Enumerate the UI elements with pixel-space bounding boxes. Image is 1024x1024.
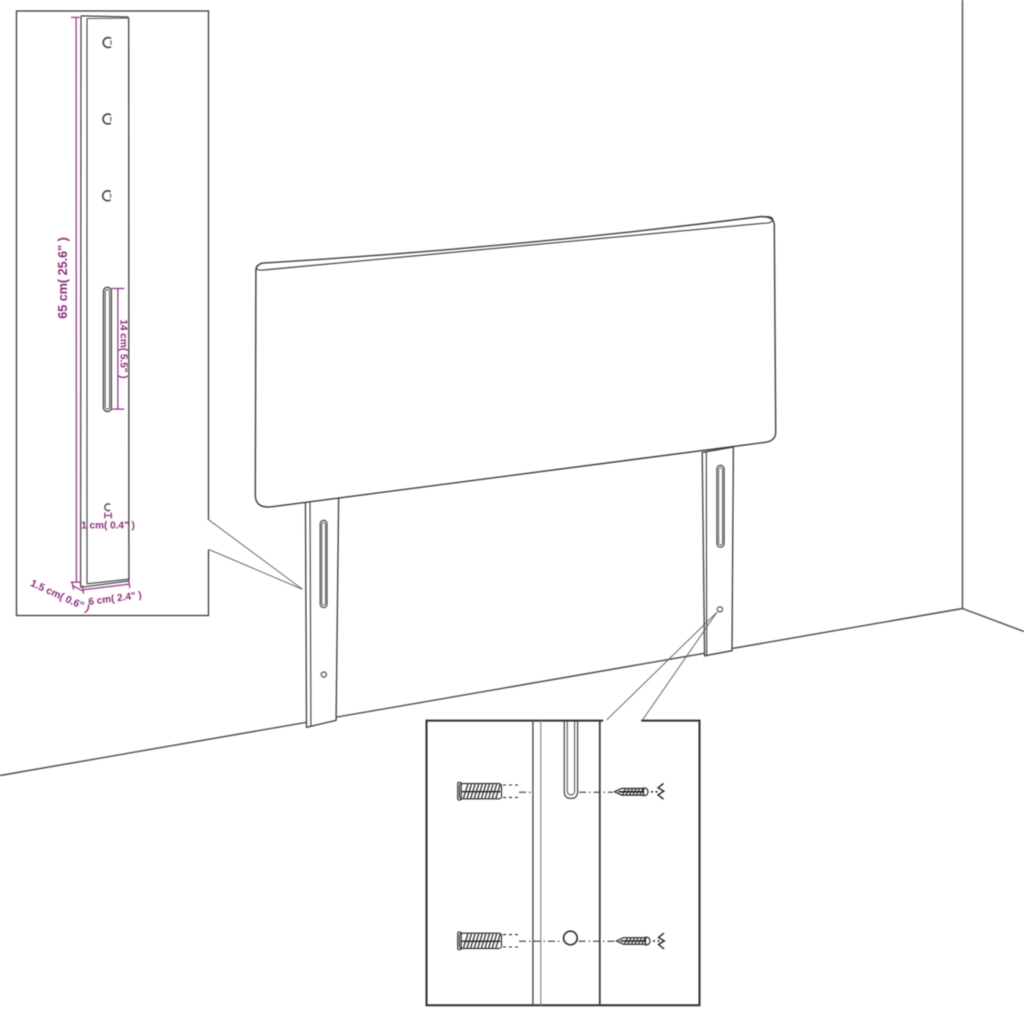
- svg-text:65 cm( 25.6" ): 65 cm( 25.6" ): [56, 237, 70, 319]
- svg-text:14 cm( 5.5" ): 14 cm( 5.5" ): [117, 319, 128, 378]
- svg-text:1 cm( 0.4" ): 1 cm( 0.4" ): [81, 521, 135, 532]
